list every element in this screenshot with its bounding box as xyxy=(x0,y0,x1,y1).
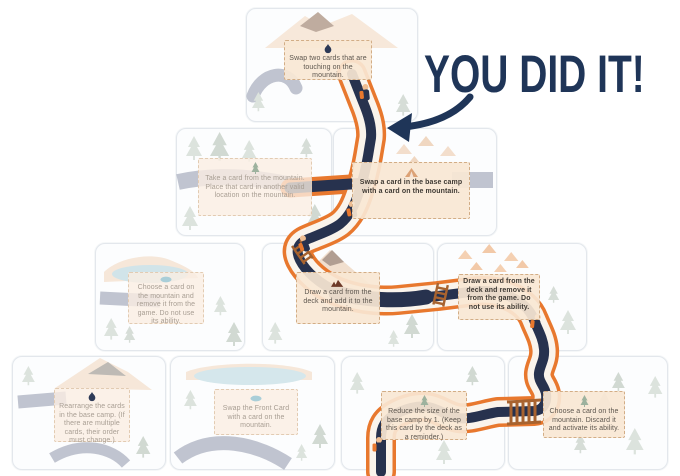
lake-icon xyxy=(160,276,172,283)
pine-tree-icon xyxy=(420,395,429,407)
mountain-icon xyxy=(331,276,345,288)
text-box-reduce-base-camp: Reduce the size of the base camp by 1. (… xyxy=(381,391,467,440)
card-ability-text: Draw a card from the deck and remove it … xyxy=(463,278,535,312)
card-ability-text: Swap two cards that are touching on the … xyxy=(289,55,367,81)
pine-tree-icon xyxy=(580,395,589,407)
text-box-take-card: Take a card from the mountain. Place tha… xyxy=(198,158,312,216)
text-box-swap-front-card: Swap the Front Card with a card on the m… xyxy=(214,389,298,435)
card-ability-text: Swap a card in the base camp with a card… xyxy=(357,179,465,196)
tent-icon xyxy=(405,166,418,178)
card-ability-text: Rearrange the cards in the base camp. (I… xyxy=(59,403,125,446)
you-did-it-banner: YOU DID IT! xyxy=(424,44,652,105)
card-ability-text: Swap the Front Card with a card on the m… xyxy=(219,405,293,431)
card-ability-text: Choose a card on the mountain. Discard i… xyxy=(548,408,620,434)
campfire-icon xyxy=(323,44,333,54)
card-ability-text: Choose a card on the mountain and remove… xyxy=(133,284,199,327)
text-box-rearrange: Rearrange the cards in the base camp. (I… xyxy=(54,388,130,442)
card-ability-text: Draw a card from the deck and add it to … xyxy=(301,289,375,315)
campfire-icon xyxy=(87,392,97,402)
card-ability-text: Take a card from the mountain. Place tha… xyxy=(203,175,307,201)
text-box-draw-add: Draw a card from the deck and add it to … xyxy=(296,272,380,324)
text-box-draw-remove: Draw a card from the deck and remove it … xyxy=(458,274,540,320)
lake-icon xyxy=(250,393,262,404)
text-box-choose-discard: Choose a card on the mountain. Discard i… xyxy=(543,391,625,438)
text-box-swap-base-camp: Swap a card in the base camp with a card… xyxy=(352,162,470,219)
text-box-choose-remove: Choose a card on the mountain and remove… xyxy=(128,272,204,324)
text-box-swap-two-touching: Swap two cards that are touching on the … xyxy=(284,40,372,80)
card-ability-text: Reduce the size of the base camp by 1. (… xyxy=(386,408,462,442)
game-board: Swap two cards that are touching on the … xyxy=(0,0,680,476)
pine-tree-icon xyxy=(251,162,260,174)
